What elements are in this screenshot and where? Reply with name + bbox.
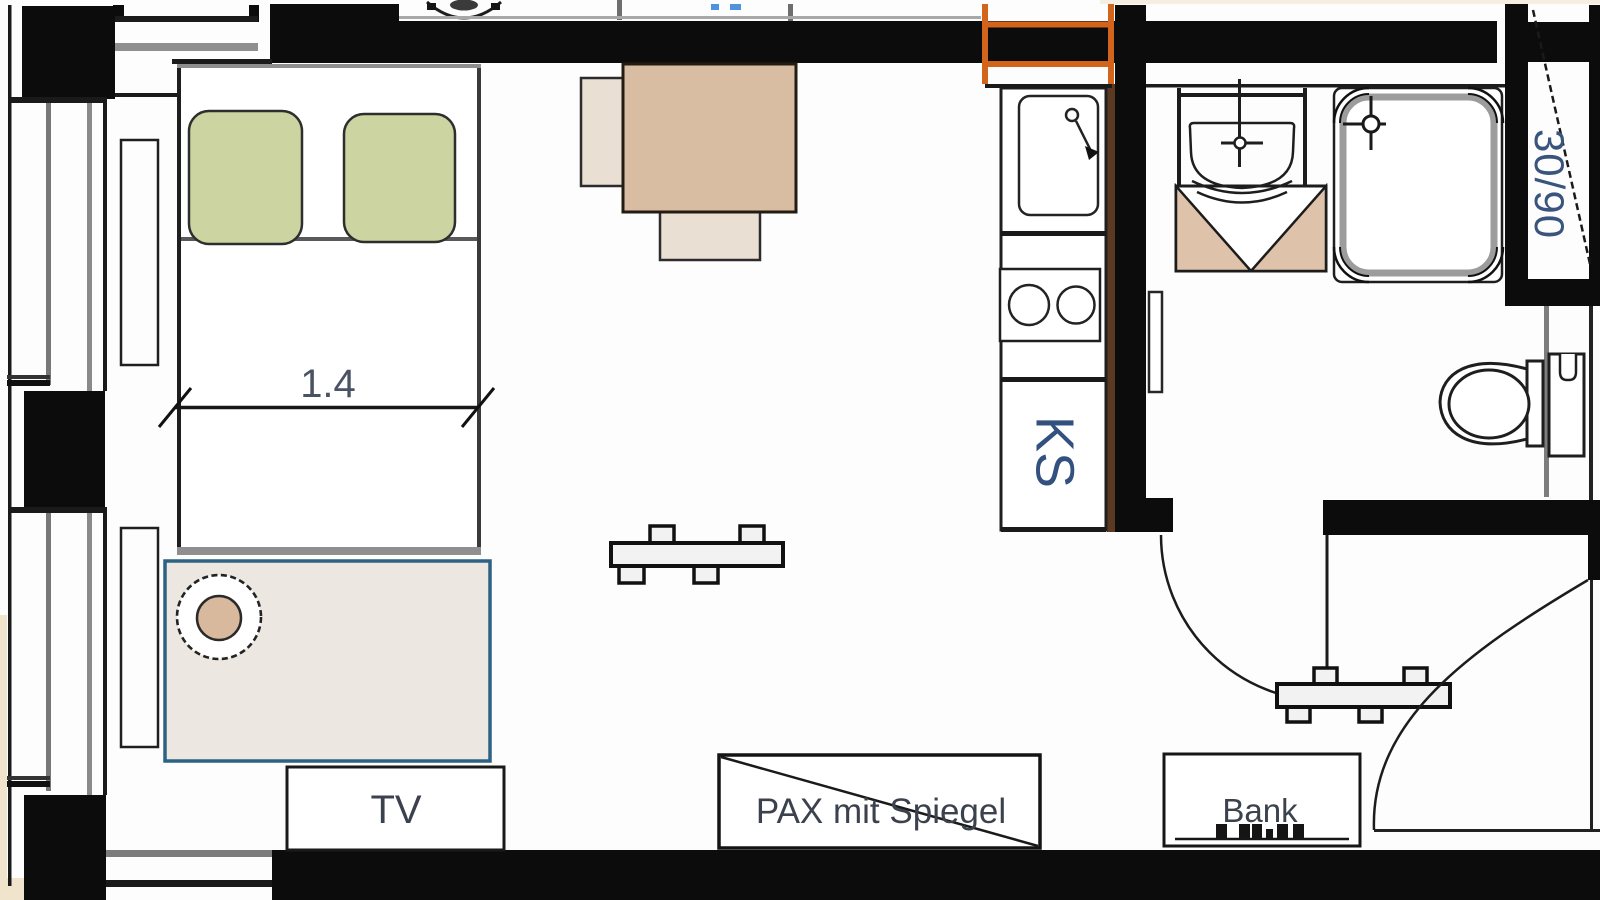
svg-text:PAX mit Spiegel: PAX mit Spiegel <box>756 792 1006 831</box>
svg-text:1.4: 1.4 <box>300 362 356 406</box>
svg-text:30/90: 30/90 <box>1526 129 1573 239</box>
svg-text:KS: KS <box>1025 416 1085 488</box>
svg-text:Bank: Bank <box>1222 792 1298 829</box>
svg-text:TV: TV <box>370 788 421 832</box>
